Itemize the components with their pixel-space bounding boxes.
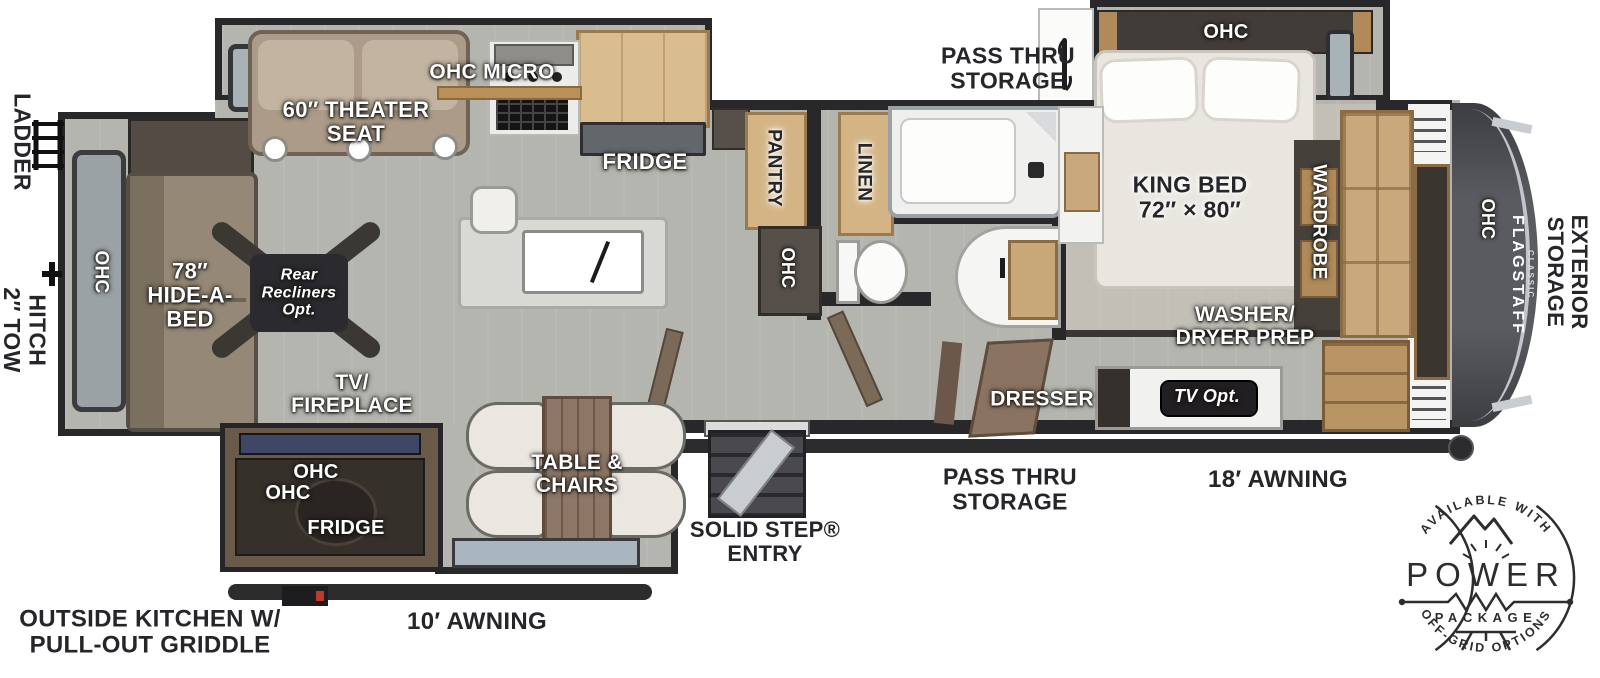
badge-subtitle: PACKAGE bbox=[1435, 610, 1538, 625]
tv-fireplace-screen bbox=[239, 433, 421, 455]
badge-title: POWER bbox=[1406, 556, 1566, 593]
line-dot bbox=[1567, 599, 1573, 605]
shower-pan bbox=[900, 118, 1016, 204]
theater-seat-label: 60″ THEATER SEAT bbox=[283, 98, 430, 146]
toilet-bowl bbox=[854, 240, 908, 304]
cupholder bbox=[432, 134, 458, 160]
outside-ohc-label-1: OHC bbox=[293, 461, 338, 483]
bedroom-window bbox=[1326, 30, 1354, 100]
hide-a-bed-label: 78″ HIDE-A- BED bbox=[147, 260, 232, 333]
bed-ohc-label: OHC bbox=[1203, 21, 1248, 43]
brand-logo: FLAGSTAFF CLASSIC bbox=[1508, 200, 1535, 350]
shower-shelf bbox=[1026, 112, 1056, 142]
pillow bbox=[1099, 56, 1199, 123]
hatch-red-marker bbox=[316, 591, 324, 601]
ladder-label: LADDER bbox=[9, 93, 34, 191]
floorplan-canvas: LADDER 2″ TOW HITCH OHC 78″ HIDE-A- BED … bbox=[0, 0, 1600, 678]
island-sink bbox=[522, 230, 644, 294]
awning-right-label: 18′ AWNING bbox=[1208, 467, 1348, 493]
awning-roller-cap bbox=[1448, 435, 1474, 461]
linen-label: LINEN bbox=[853, 143, 874, 202]
vanity-mirror bbox=[1008, 240, 1058, 320]
washer-dryer-label: WASHER/ DRYER PREP bbox=[1176, 303, 1315, 349]
brand-series: CLASSIC bbox=[1526, 200, 1535, 350]
bed-ohc-wood-end bbox=[1099, 12, 1117, 52]
outside-kitchen-label: OUTSIDE KITCHEN W/ PULL-OUT GRIDDLE bbox=[19, 607, 280, 660]
storage-shelf-lines bbox=[1412, 118, 1446, 152]
island-stool bbox=[470, 186, 518, 234]
outside-ohc-label-2: OHC bbox=[265, 482, 310, 504]
power-cord-hatch bbox=[282, 586, 328, 606]
solid-step-label: SOLID STEP® ENTRY bbox=[690, 518, 840, 566]
tow-hitch-label: 2″ TOW HITCH bbox=[0, 287, 49, 372]
entry-mat bbox=[452, 538, 640, 568]
power-package-badge: AVAILABLE WITH POWER PACKAGE OFF-GRID OP… bbox=[1386, 478, 1586, 678]
awning-left-label: 10′ AWNING bbox=[407, 609, 547, 635]
rear-head-cabinet bbox=[128, 118, 254, 176]
pass-thru-top-label: PASS THRU STORAGE bbox=[941, 44, 1075, 95]
tv-unit-cabinet bbox=[1098, 369, 1130, 427]
nook-shelf bbox=[1064, 152, 1100, 212]
washer-prep-chest bbox=[1322, 340, 1410, 432]
rear-recliners-label: Rear Recliners Opt. bbox=[262, 267, 337, 320]
dresser-label: DRESSER bbox=[990, 387, 1094, 410]
front-ohc-label: OHC bbox=[1477, 199, 1497, 240]
pillow bbox=[1201, 56, 1301, 123]
ohc-micro-label: OHC MICRO bbox=[429, 60, 554, 83]
rear-ohc-label: OHC bbox=[90, 250, 111, 293]
table-chairs-label: TABLE & CHAIRS bbox=[531, 451, 623, 497]
step-tread bbox=[717, 429, 795, 517]
tow-hitch-icon bbox=[42, 262, 62, 286]
front-storage-interior bbox=[1408, 104, 1450, 428]
exterior-storage-label: EXTERIOR STORAGE bbox=[1543, 215, 1591, 330]
king-bed-label: KING BED 72″ × 80″ bbox=[1133, 173, 1248, 224]
shower bbox=[888, 106, 1062, 218]
pantry-ohc-label: OHC bbox=[777, 248, 797, 289]
bed-ohc-wood-end bbox=[1353, 12, 1371, 52]
vanity-faucet bbox=[1000, 258, 1005, 278]
pantry-label: PANTRY bbox=[763, 129, 784, 207]
wardrobe-cabinet bbox=[1340, 110, 1414, 338]
solid-step-stairs bbox=[708, 430, 806, 518]
kitchen-shelf-bar bbox=[437, 86, 582, 100]
shower-head-icon bbox=[1028, 162, 1044, 178]
tv-opt-label: TV Opt. bbox=[1174, 387, 1240, 407]
line-dot bbox=[1399, 599, 1405, 605]
fridge-label: FRIDGE bbox=[603, 150, 688, 174]
storage-shelf-cabinet bbox=[1414, 164, 1450, 380]
pass-thru-bottom-label: PASS THRU STORAGE bbox=[943, 465, 1077, 516]
storage-shelf-lines bbox=[1412, 386, 1446, 420]
bedroom-nook bbox=[1058, 106, 1104, 244]
outside-fridge-label: FRIDGE bbox=[307, 517, 384, 539]
tv-fireplace-label: TV/ FIREPLACE bbox=[291, 371, 413, 417]
wardrobe-label: WARDROBE bbox=[1308, 164, 1329, 279]
kitchen-counter-wood bbox=[576, 30, 710, 128]
brand-name: FLAGSTAFF bbox=[1509, 215, 1526, 336]
outside-kitchen-unit bbox=[220, 423, 443, 572]
